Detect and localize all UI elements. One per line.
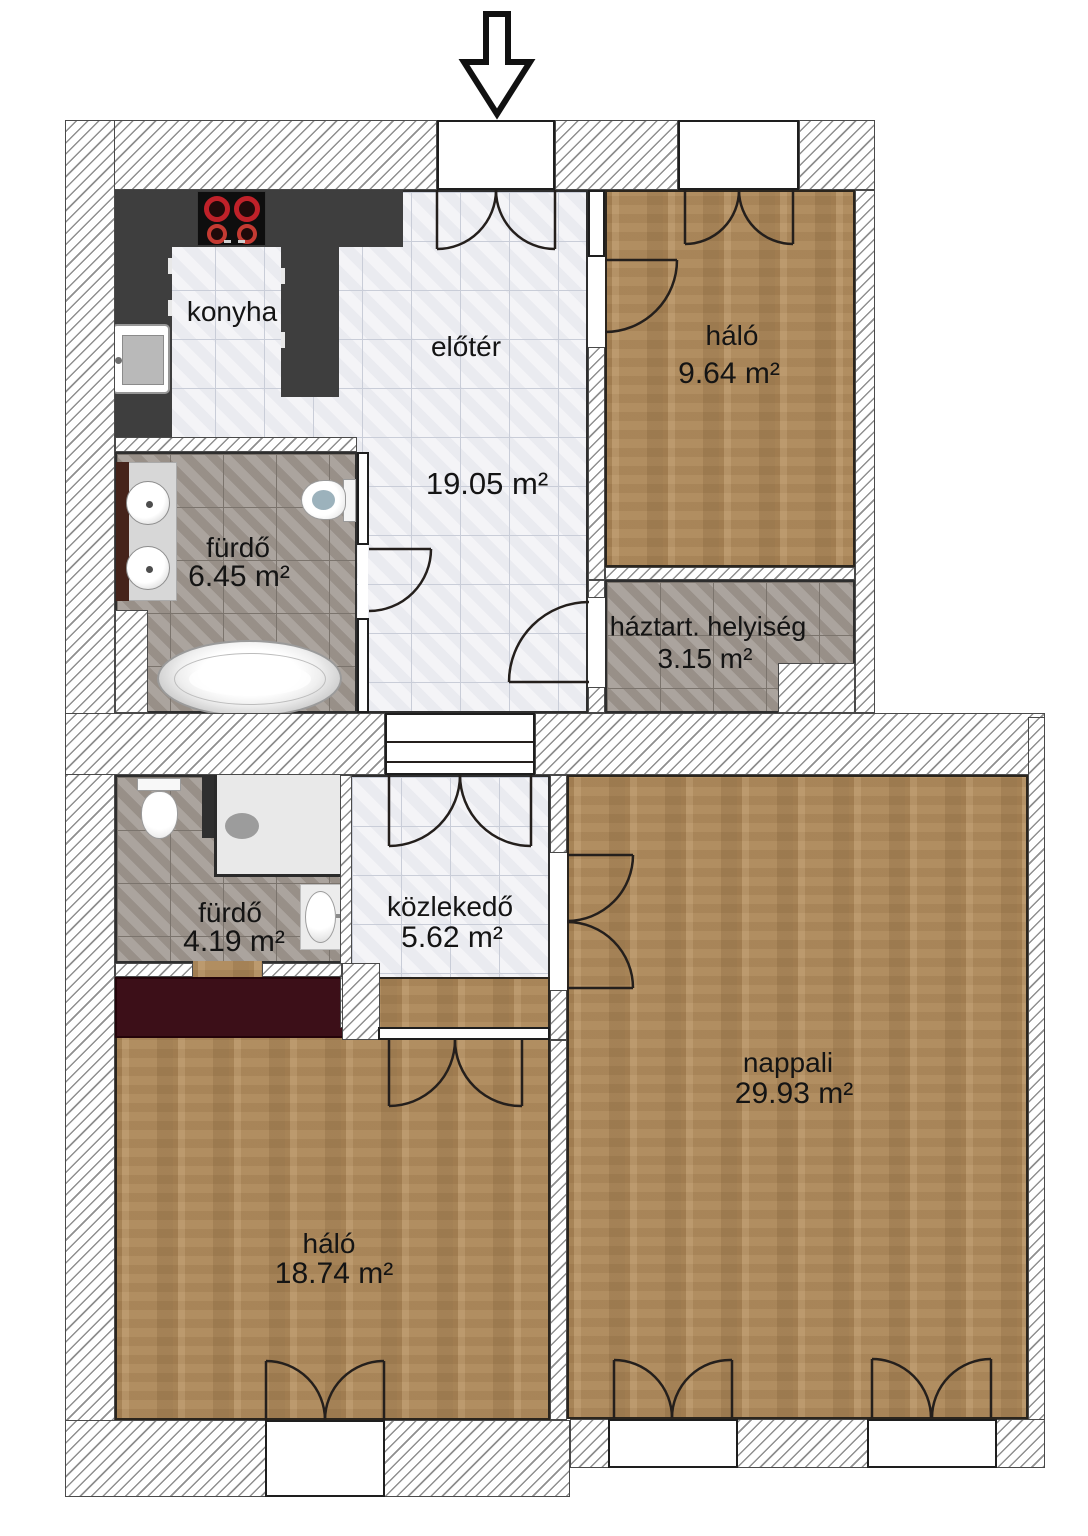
wall-middle	[535, 713, 1045, 775]
wall-corner	[342, 963, 380, 1040]
kitchen-sink-icon	[112, 324, 170, 394]
bathtub-icon	[157, 640, 342, 717]
room-name-label: közlekedő	[387, 891, 513, 923]
wall-halo-right	[550, 1040, 567, 1420]
room-name-label: nappali	[743, 1047, 833, 1079]
wall-top	[555, 120, 678, 190]
shower-drain-icon	[225, 813, 259, 839]
wall-middle	[65, 713, 385, 775]
wall-haztartasi-left	[588, 687, 605, 713]
room-area-label: 18.74 m²	[275, 1257, 393, 1291]
room-area-label: 29.93 m²	[735, 1077, 853, 1111]
washbasin-icon	[126, 481, 170, 525]
room-area-label: 4.19 m²	[183, 925, 285, 959]
wall-haztartasi-left	[588, 580, 605, 598]
stove-control-icon	[238, 240, 245, 243]
window	[608, 1419, 738, 1468]
cabinet-handle-icon	[168, 258, 172, 274]
wall-notch	[778, 663, 855, 713]
wall-top	[799, 120, 875, 190]
faucet-icon	[115, 357, 122, 364]
vanity-edge	[116, 462, 129, 601]
room-name-label: háló	[303, 1228, 356, 1260]
wall-furdo-bottom	[115, 963, 193, 977]
room-name-label: háló	[706, 320, 759, 352]
window	[265, 1420, 385, 1497]
bathtub-basin	[189, 662, 311, 696]
floor-plan: konyha előtér 19.05 m² háló 9.64 m² fürd…	[0, 0, 1088, 1536]
wall-halo-bottom	[605, 567, 855, 580]
toilet-icon	[141, 791, 178, 839]
wall-top	[65, 120, 437, 190]
wall-notch	[115, 610, 148, 713]
sink-basin-icon	[305, 891, 336, 943]
stove-control-icon	[224, 240, 231, 243]
washbasin-icon	[126, 546, 170, 590]
room-floor-halo-large	[115, 977, 550, 1420]
room-name-label: háztart. helyiség	[610, 612, 807, 643]
wardrobe	[115, 977, 355, 1038]
room-area-label: 6.45 m²	[188, 560, 290, 594]
kitchen-counter	[281, 247, 339, 397]
window	[867, 1419, 997, 1468]
room-name-label: előtér	[431, 331, 501, 363]
wall-right-upper	[855, 190, 875, 713]
sink-basin-icon	[122, 335, 164, 385]
shower-icon	[214, 775, 342, 877]
burner-icon	[234, 196, 260, 222]
door-opening	[358, 545, 368, 618]
wall-kozlekedo-bottom	[378, 1027, 550, 1040]
partition-wall	[202, 777, 214, 838]
toilet-seat-icon	[312, 490, 335, 510]
wall-kozlekedo-right	[550, 775, 567, 853]
door-opening	[589, 598, 604, 687]
door-opening	[552, 853, 567, 990]
stove-icon	[197, 191, 266, 246]
door-opening	[385, 713, 535, 775]
burner-icon	[204, 196, 230, 222]
cabinet-handle-icon	[281, 268, 285, 284]
wall-furdo-bottom	[262, 963, 342, 977]
room-name-label: konyha	[187, 296, 277, 328]
room-area-label: 5.62 m²	[401, 921, 503, 955]
wall-furdo-right	[357, 618, 369, 713]
room-area-label: 19.05 m²	[426, 466, 548, 502]
room-area-label: 3.15 m²	[658, 643, 753, 675]
bathroom-sink-icon	[300, 884, 342, 950]
wall-left	[65, 120, 115, 1497]
window	[678, 120, 799, 190]
cabinet-handle-icon	[281, 332, 285, 348]
drain-icon	[146, 566, 153, 573]
toilet-tank-icon	[137, 778, 181, 791]
wall-right-lower	[1028, 717, 1045, 1468]
drain-icon	[146, 501, 153, 508]
wall-furdo-right	[357, 452, 369, 545]
wall-kozlekedo-right	[550, 990, 567, 1040]
entrance-door-opening	[437, 120, 555, 190]
cabinet-handle-icon	[168, 300, 172, 316]
wall-furdo-top	[115, 437, 357, 452]
wall-halo-left	[588, 347, 605, 580]
wall-halo-left	[588, 190, 605, 257]
room-area-label: 9.64 m²	[678, 357, 780, 391]
door-opening	[589, 257, 604, 347]
